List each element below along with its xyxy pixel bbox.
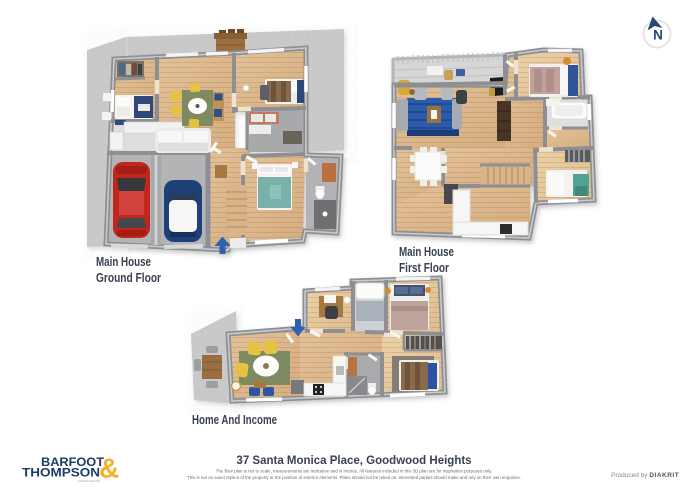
svg-text:37 Santa Monica Place, Goodwoo: 37 Santa Monica Place, Goodwood Heights: [236, 455, 471, 467]
svg-text:&: &: [99, 453, 119, 484]
svg-text:This is not an exact replica o: This is not an exact replica of the prop…: [187, 475, 521, 480]
svg-text:Produced by DIAKRIT: Produced by DIAKRIT: [611, 472, 679, 479]
svg-text:LICENSED REAA 2008: LICENSED REAA 2008: [77, 479, 100, 483]
svg-text:Main House: Main House: [96, 255, 151, 269]
svg-text:N: N: [653, 28, 663, 43]
svg-text:Home And Income: Home And Income: [192, 413, 277, 427]
svg-text:Main House: Main House: [399, 245, 454, 259]
svg-text:The floor plan is not to scale: The floor plan is not to scale, measurem…: [216, 469, 493, 474]
svg-text:THOMPSON: THOMPSON: [22, 466, 100, 480]
svg-text:First Floor: First Floor: [399, 261, 449, 275]
svg-text:Ground Floor: Ground Floor: [96, 271, 161, 285]
